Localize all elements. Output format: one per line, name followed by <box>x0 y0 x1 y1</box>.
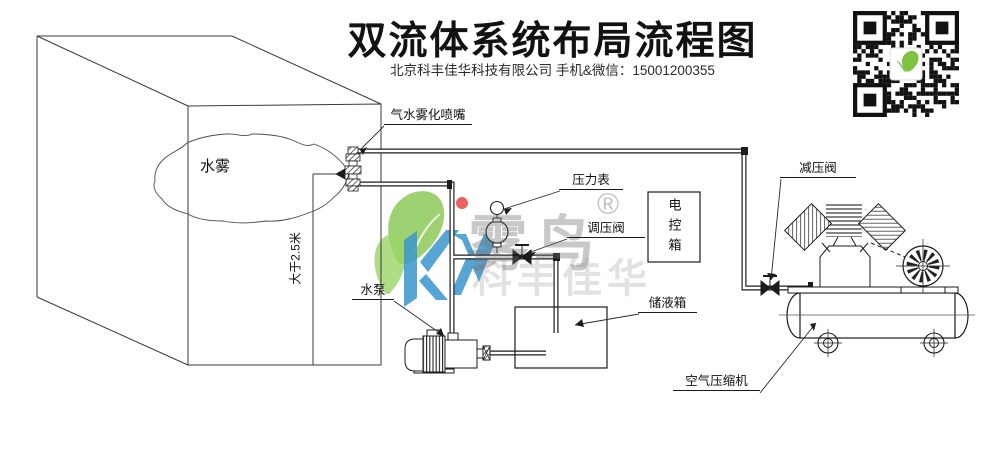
compressor-cylinder-left <box>785 204 832 251</box>
storage-tank-outline <box>515 307 607 368</box>
qr-code <box>853 11 959 117</box>
watermark-dot <box>456 197 468 209</box>
page-title: 双流体系统布局流程图 <box>320 10 785 66</box>
height-dimension-lines <box>313 174 346 365</box>
mist-cloud <box>154 134 349 223</box>
label-storage-tank: 储液箱 <box>638 296 697 313</box>
pipe-elbow-fitting <box>741 147 748 155</box>
label-reducing-valve: 减压阀 <box>780 161 856 178</box>
label-nozzle: 气水雾化喷嘴 <box>384 108 472 125</box>
room-box <box>37 36 381 365</box>
compressor-cylinder-right <box>859 204 906 251</box>
label-height-dimension: 大于2.5米 <box>287 218 304 300</box>
label-regulating-valve: 调压阀 <box>567 221 645 238</box>
watermark-sub-text: 科丰佳华 <box>472 246 652 304</box>
watermark-registered-mark: ® <box>597 188 619 222</box>
water-pump-drawing <box>405 330 490 373</box>
nozzle-spray-tip <box>336 169 345 179</box>
label-air-compressor: 空气压缩机 <box>673 374 760 391</box>
screenshot-root: 双流体系统布局流程图 北京科丰佳华科技有限公司 手机&微信：1500120035… <box>0 0 992 460</box>
label-water-mist: 水雾 <box>200 160 230 176</box>
air-compressor-drawing <box>779 204 975 357</box>
label-control-box: 电控箱 <box>648 194 700 262</box>
reducing-valve <box>761 276 779 295</box>
label-pressure-gauge: 压力表 <box>559 173 623 190</box>
air-water-nozzle <box>336 147 361 191</box>
label-water-pump: 水泵 <box>352 283 394 300</box>
compressor-motor-fan <box>896 239 950 293</box>
page-subtitle: 北京科丰佳华科技有限公司 手机&微信：15001200355 <box>320 59 785 79</box>
pipe-union <box>447 180 452 189</box>
